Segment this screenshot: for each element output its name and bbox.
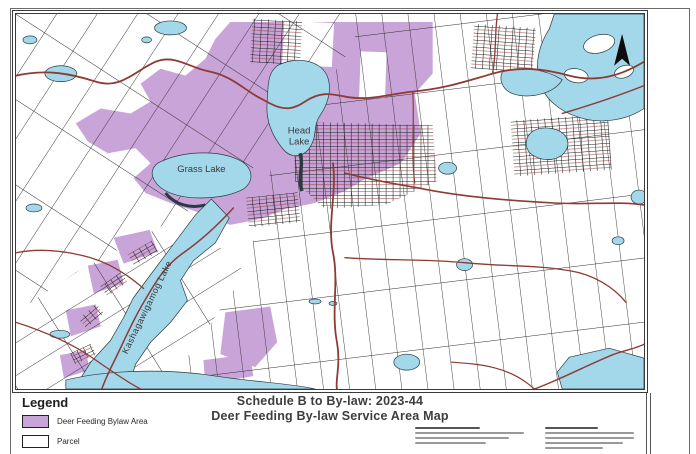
map-title-block: Schedule B to By-law: 2023-44 Deer Feedi…: [12, 394, 648, 423]
map-sheet: Head Lake Grass Lake Kashagawigamog Lake…: [0, 0, 696, 454]
map-title-line1: Schedule B to By-law: 2023-44: [12, 394, 648, 408]
map-canvas: Head Lake Grass Lake Kashagawigamog Lake: [16, 14, 644, 389]
fine-print-block-left: [415, 427, 533, 447]
map-frame: Head Lake Grass Lake Kashagawigamog Lake: [12, 10, 648, 393]
map-neatline: Head Lake Grass Lake Kashagawigamog Lake: [15, 13, 645, 390]
grass-lake-label: Grass Lake: [177, 164, 225, 175]
parcel-swatch: [22, 435, 49, 448]
legend-item-parcel: Parcel: [22, 435, 80, 448]
head-lake-label-line1: Head: [288, 125, 311, 136]
map-title-line2: Deer Feeding By-law Service Area Map: [12, 409, 648, 423]
head-lake-label-line2: Lake: [289, 136, 309, 147]
legend-item-label: Parcel: [57, 437, 80, 446]
fine-print-block-right: [545, 427, 642, 452]
